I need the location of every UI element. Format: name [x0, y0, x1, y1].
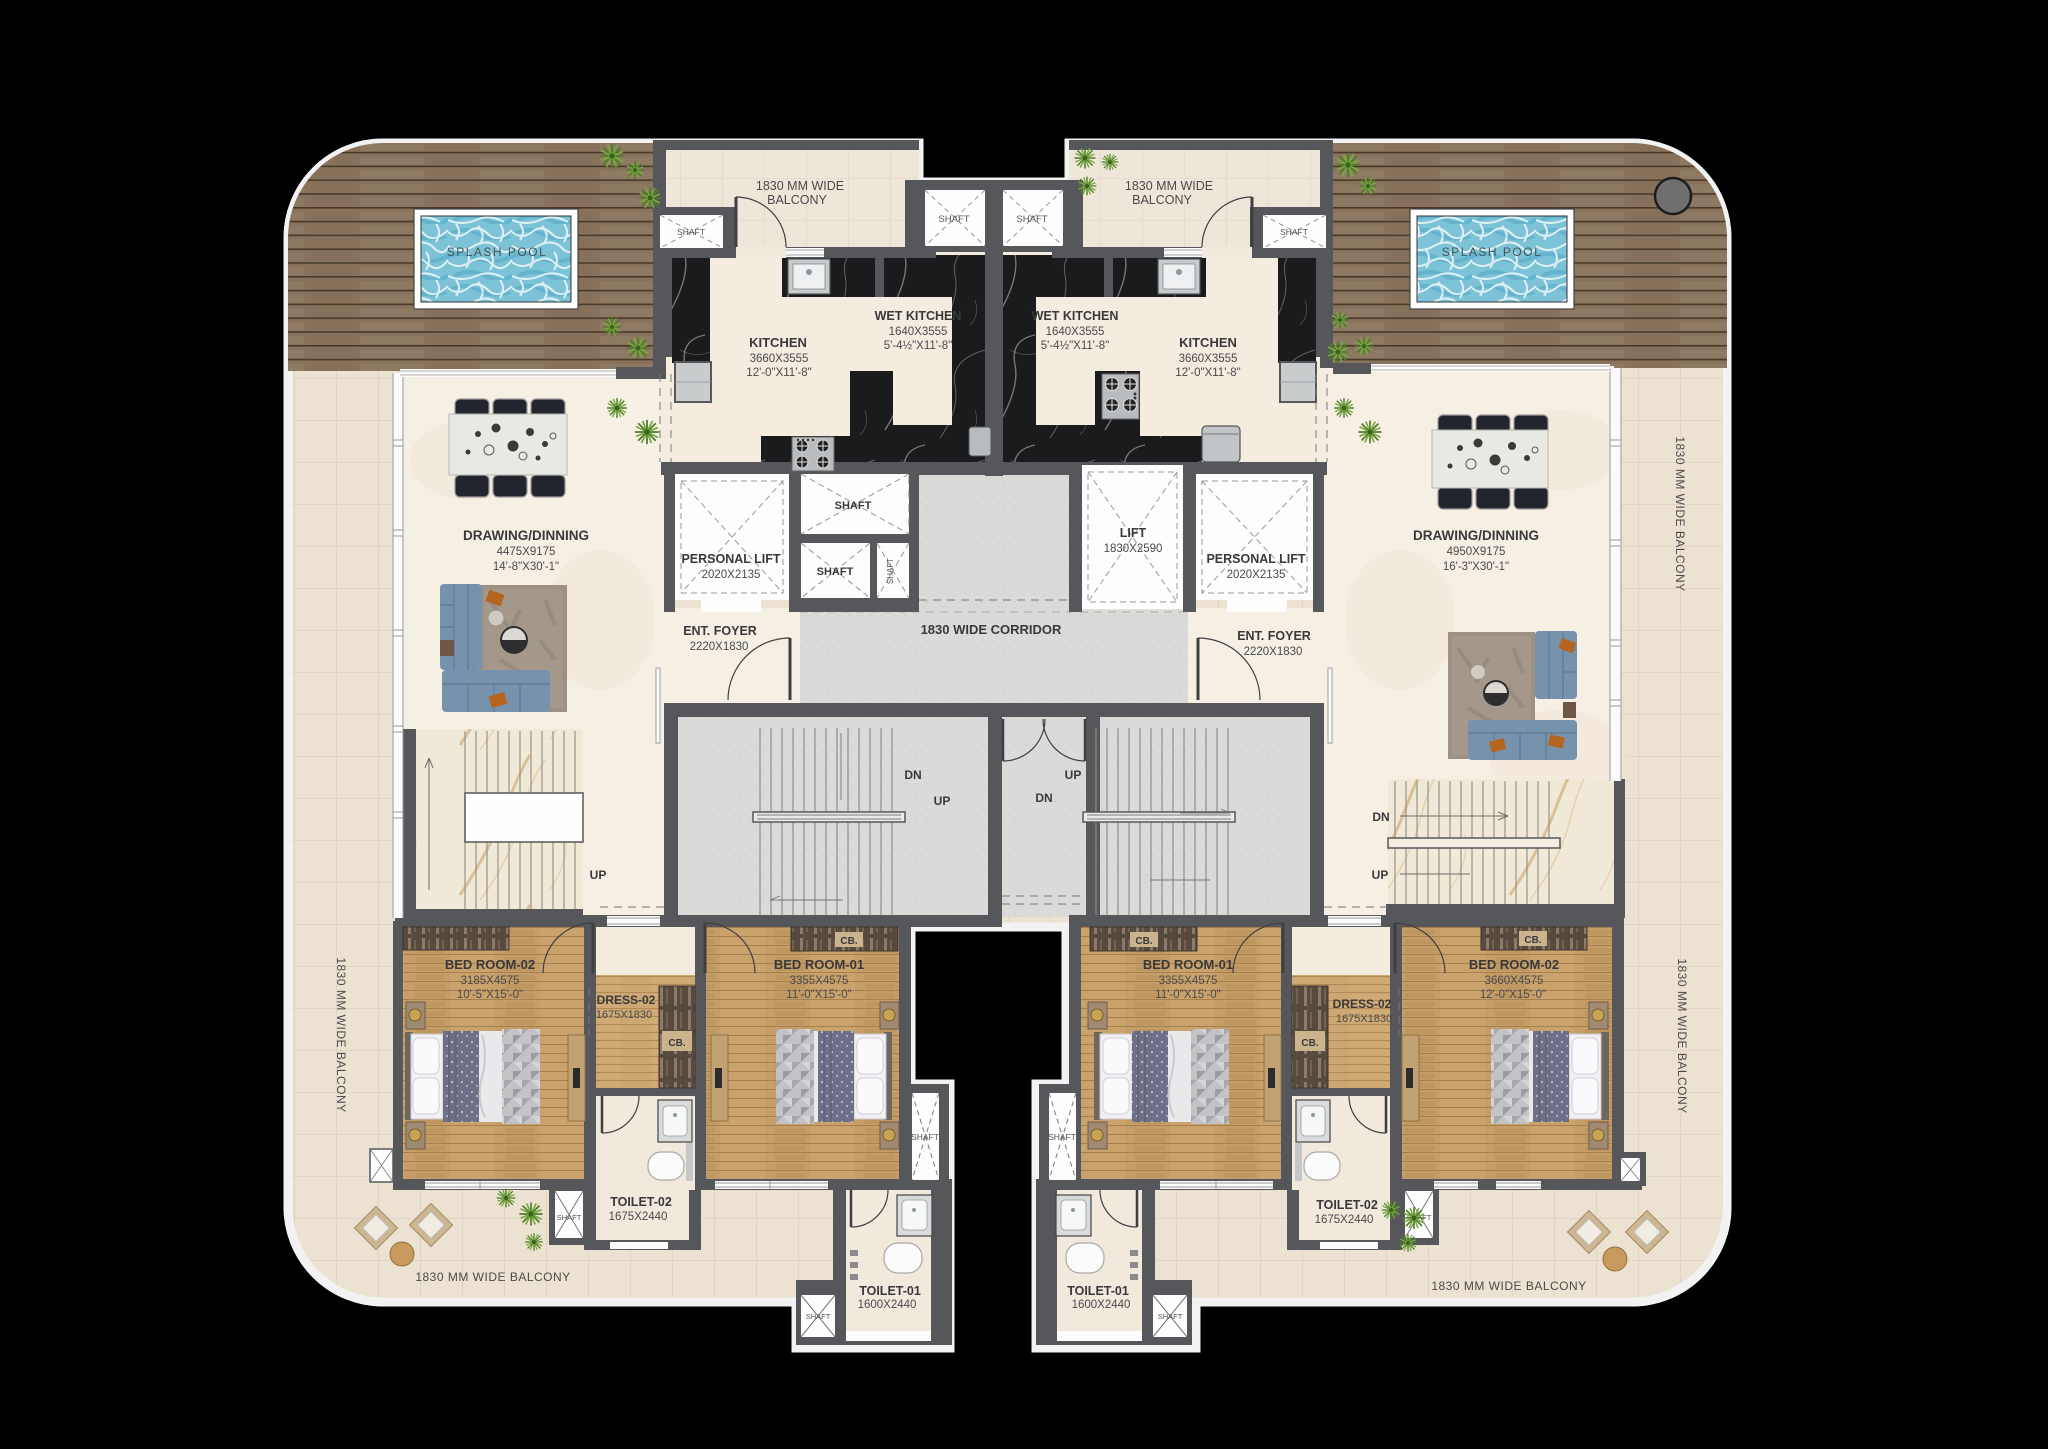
svg-text:1675X2440: 1675X2440 — [1315, 1214, 1374, 1226]
svg-text:1830 WIDE CORRIDOR: 1830 WIDE CORRIDOR — [921, 622, 1062, 637]
svg-text:SHAFT: SHAFT — [938, 214, 969, 225]
svg-text:1640X3555: 1640X3555 — [889, 326, 948, 338]
svg-text:DRAWING/DINNING: DRAWING/DINNING — [463, 528, 589, 543]
svg-text:DN: DN — [1035, 791, 1052, 805]
svg-text:3185X4575: 3185X4575 — [461, 975, 520, 987]
svg-text:UP: UP — [1065, 768, 1082, 782]
svg-text:DRESS-02: DRESS-02 — [597, 993, 656, 1007]
svg-text:1675X1830: 1675X1830 — [1336, 1013, 1392, 1025]
svg-text:1600X2440: 1600X2440 — [1072, 1299, 1131, 1311]
svg-text:CB.: CB. — [1524, 935, 1541, 946]
svg-text:3660X3555: 3660X3555 — [750, 353, 809, 365]
svg-text:1675X1830: 1675X1830 — [596, 1009, 652, 1021]
svg-text:2220X1830: 2220X1830 — [1244, 646, 1303, 658]
svg-text:11'-0"X15'-0": 11'-0"X15'-0" — [786, 989, 851, 1001]
svg-text:4475X9175: 4475X9175 — [497, 546, 556, 558]
svg-text:5'-4½"X11'-8": 5'-4½"X11'-8" — [884, 340, 953, 352]
svg-text:UP: UP — [590, 868, 607, 882]
svg-text:SHAFT: SHAFT — [677, 227, 705, 237]
svg-text:1830 MM WIDE BALCONY: 1830 MM WIDE BALCONY — [1673, 436, 1687, 591]
svg-text:DN: DN — [904, 768, 921, 782]
svg-text:1830X2590: 1830X2590 — [1104, 543, 1163, 555]
svg-text:5'-4½"X11'-8": 5'-4½"X11'-8" — [1041, 340, 1110, 352]
svg-text:1830 MM WIDE BALCONY: 1830 MM WIDE BALCONY — [1431, 1279, 1586, 1293]
svg-text:2020X2135: 2020X2135 — [702, 569, 761, 581]
svg-text:CB.: CB. — [1301, 1038, 1318, 1049]
svg-text:12'-0"X11'-8": 12'-0"X11'-8" — [746, 367, 811, 379]
svg-text:UP: UP — [934, 794, 951, 808]
svg-text:KITCHEN: KITCHEN — [1179, 335, 1237, 350]
svg-text:4950X9175: 4950X9175 — [1447, 546, 1506, 558]
svg-text:SHAFT: SHAFT — [1158, 1312, 1183, 1321]
svg-text:1675X2440: 1675X2440 — [609, 1211, 668, 1223]
svg-text:14'-8"X30'-1": 14'-8"X30'-1" — [493, 561, 559, 573]
svg-text:2220X1830: 2220X1830 — [690, 641, 749, 653]
svg-text:BALCONY: BALCONY — [1132, 193, 1192, 207]
svg-text:1830 MM WIDE BALCONY: 1830 MM WIDE BALCONY — [415, 1270, 570, 1284]
svg-text:3355X4575: 3355X4575 — [1159, 975, 1218, 987]
svg-text:CB.: CB. — [668, 1038, 685, 1049]
svg-text:SHAFT: SHAFT — [886, 558, 895, 584]
svg-text:SHAFT: SHAFT — [1016, 214, 1047, 225]
svg-text:SHAFT: SHAFT — [557, 1213, 582, 1222]
svg-text:KITCHEN: KITCHEN — [749, 335, 807, 350]
svg-text:2020X2135: 2020X2135 — [1227, 569, 1286, 581]
svg-text:DRESS-02: DRESS-02 — [1333, 997, 1392, 1011]
svg-text:10'-5"X15'-0": 10'-5"X15'-0" — [457, 989, 523, 1001]
svg-text:SHAFT: SHAFT — [817, 566, 854, 578]
svg-text:1830 MM WIDE BALCONY: 1830 MM WIDE BALCONY — [334, 957, 348, 1112]
svg-text:1640X3555: 1640X3555 — [1046, 326, 1105, 338]
svg-text:DRAWING/DINNING: DRAWING/DINNING — [1413, 528, 1539, 543]
svg-text:1830 MM WIDE: 1830 MM WIDE — [1125, 179, 1213, 193]
svg-text:SHAFT: SHAFT — [806, 1312, 831, 1321]
svg-text:TOILET-02: TOILET-02 — [610, 1195, 672, 1209]
svg-text:PERSONAL LIFT: PERSONAL LIFT — [1206, 552, 1305, 566]
svg-text:SPLASH POOL: SPLASH POOL — [1442, 245, 1543, 259]
svg-text:BED ROOM-01: BED ROOM-01 — [774, 957, 864, 972]
svg-text:12'-0"X15'-0": 12'-0"X15'-0" — [1480, 989, 1546, 1001]
svg-text:3660X3555: 3660X3555 — [1179, 353, 1238, 365]
svg-text:TOILET-02: TOILET-02 — [1316, 1198, 1378, 1212]
svg-text:DN: DN — [1372, 810, 1389, 824]
svg-text:LIFT: LIFT — [1120, 526, 1147, 540]
svg-text:BED ROOM-02: BED ROOM-02 — [1469, 957, 1559, 972]
svg-text:CB.: CB. — [1135, 936, 1152, 947]
svg-text:BED ROOM-01: BED ROOM-01 — [1143, 957, 1233, 972]
svg-text:SPLASH POOL: SPLASH POOL — [447, 245, 548, 259]
svg-text:ENT. FOYER: ENT. FOYER — [1237, 629, 1311, 643]
svg-text:WET KITCHEN: WET KITCHEN — [875, 309, 962, 323]
svg-text:TOILET-01: TOILET-01 — [1067, 1284, 1129, 1298]
svg-text:BED ROOM-02: BED ROOM-02 — [445, 957, 535, 972]
svg-text:UP: UP — [1372, 868, 1389, 882]
svg-text:3660X4575: 3660X4575 — [1485, 975, 1544, 987]
svg-text:3355X4575: 3355X4575 — [790, 975, 849, 987]
svg-text:1830 MM WIDE BALCONY: 1830 MM WIDE BALCONY — [1675, 958, 1689, 1113]
svg-text:TOILET-01: TOILET-01 — [859, 1284, 921, 1298]
svg-text:1830 MM WIDE: 1830 MM WIDE — [756, 179, 844, 193]
svg-text:12'-0"X11'-8": 12'-0"X11'-8" — [1175, 367, 1240, 379]
svg-text:WET KITCHEN: WET KITCHEN — [1032, 309, 1119, 323]
svg-text:PERSONAL LIFT: PERSONAL LIFT — [681, 552, 780, 566]
svg-text:SHAFT: SHAFT — [1280, 227, 1308, 237]
svg-text:SHAFT: SHAFT — [1048, 1132, 1076, 1142]
svg-text:SHAFT: SHAFT — [835, 500, 872, 512]
svg-text:SHAFT: SHAFT — [911, 1132, 939, 1142]
svg-text:CB.: CB. — [840, 936, 857, 947]
svg-text:ENT. FOYER: ENT. FOYER — [683, 624, 757, 638]
svg-text:BALCONY: BALCONY — [767, 193, 827, 207]
svg-text:11'-0"X15'-0": 11'-0"X15'-0" — [1155, 989, 1220, 1001]
svg-text:1600X2440: 1600X2440 — [858, 1299, 917, 1311]
svg-text:16'-3"X30'-1": 16'-3"X30'-1" — [1443, 561, 1509, 573]
